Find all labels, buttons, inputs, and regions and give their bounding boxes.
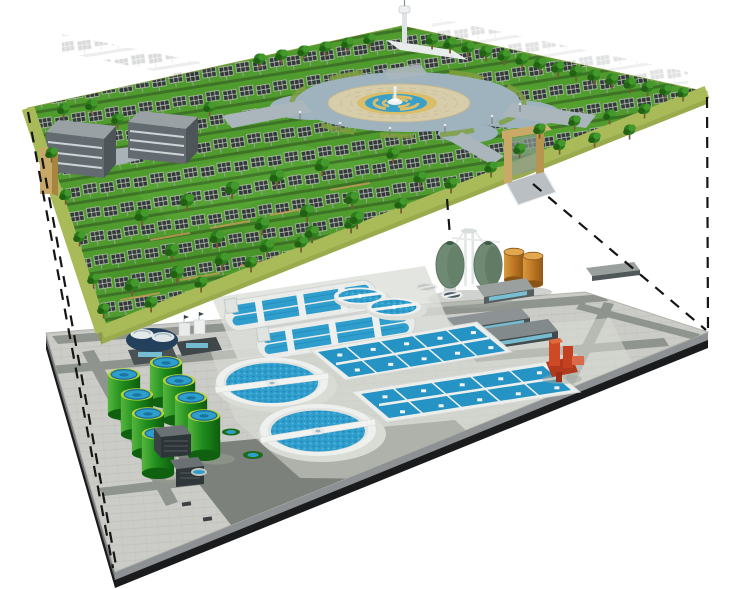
cutaway-illustration: Cutaway illustration: underground wastew… [0, 0, 740, 589]
fountain-spire [394, 88, 397, 100]
illustration-stage: Cutaway illustration: underground wastew… [0, 0, 740, 589]
